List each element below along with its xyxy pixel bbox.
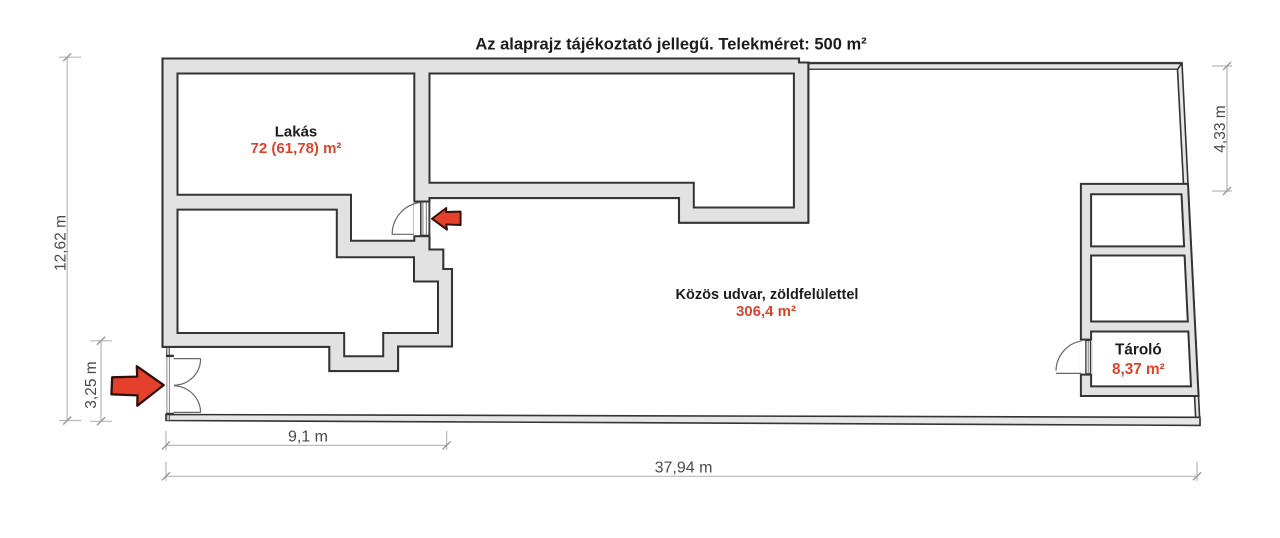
svg-text:Tároló: Tároló [1115, 342, 1162, 359]
svg-text:3,25 m: 3,25 m [83, 361, 100, 408]
svg-text:9,1 m: 9,1 m [288, 429, 328, 446]
svg-text:8,37 m²: 8,37 m² [1112, 361, 1165, 378]
svg-text:306,4 m²: 306,4 m² [736, 303, 796, 320]
svg-text:Az alaprajz tájékoztató jelleg: Az alaprajz tájékoztató jellegű. Telekmé… [475, 36, 867, 54]
svg-text:12,62 m: 12,62 m [53, 215, 70, 271]
svg-text:72 (61,78) m²: 72 (61,78) m² [251, 140, 342, 157]
svg-text:4,33 m: 4,33 m [1212, 105, 1229, 152]
svg-text:Közös udvar, zöldfelülettel: Közös udvar, zöldfelülettel [676, 287, 859, 303]
svg-text:37,94 m: 37,94 m [655, 460, 713, 477]
svg-text:Lakás: Lakás [275, 123, 318, 140]
